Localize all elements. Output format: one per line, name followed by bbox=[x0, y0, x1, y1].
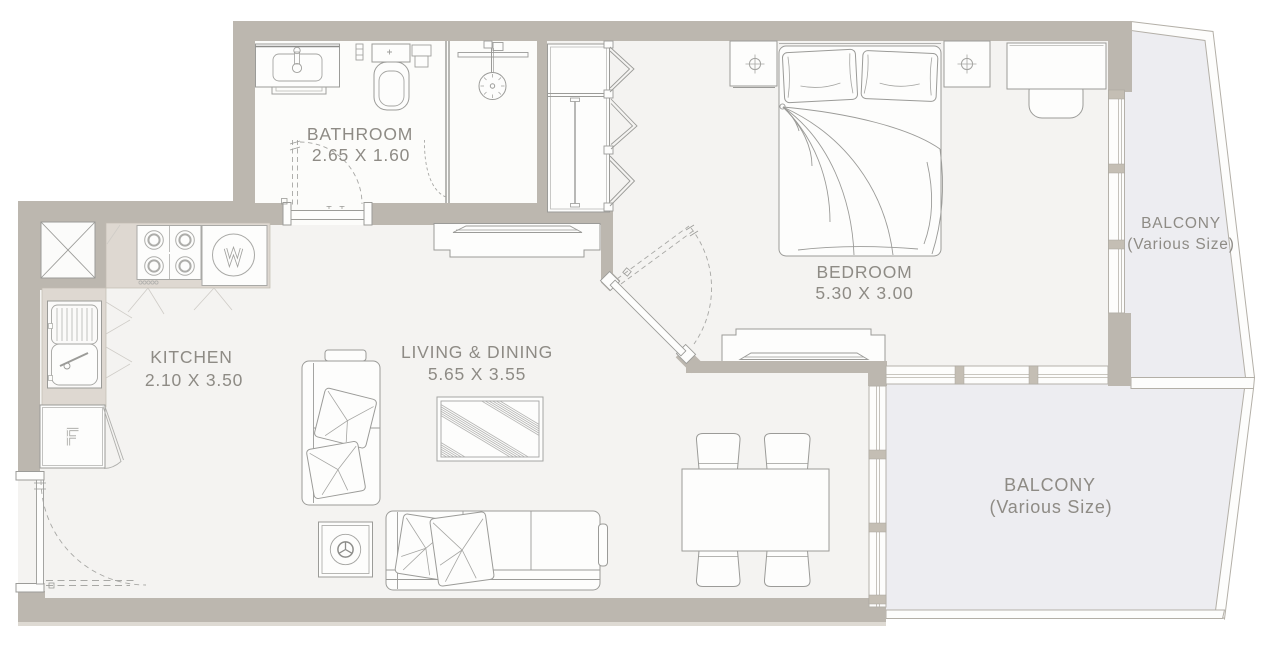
svg-text:BALCONY: BALCONY bbox=[1141, 215, 1221, 232]
svg-text:BALCONY: BALCONY bbox=[1004, 475, 1096, 495]
svg-text:2.65 X 1.60: 2.65 X 1.60 bbox=[312, 145, 410, 165]
svg-text:LIVING & DINING: LIVING & DINING bbox=[401, 342, 553, 362]
svg-text:(Various Size): (Various Size) bbox=[1127, 236, 1234, 253]
svg-text:5.30 X 3.00: 5.30 X 3.00 bbox=[815, 283, 913, 303]
svg-text:5.65 X 3.55: 5.65 X 3.55 bbox=[428, 364, 526, 384]
svg-text:KITCHEN: KITCHEN bbox=[150, 347, 232, 367]
svg-text:BEDROOM: BEDROOM bbox=[816, 262, 912, 282]
svg-text:BATHROOM: BATHROOM bbox=[307, 124, 413, 144]
svg-text:2.10 X 3.50: 2.10 X 3.50 bbox=[145, 370, 243, 390]
svg-text:(Various Size): (Various Size) bbox=[990, 497, 1113, 517]
